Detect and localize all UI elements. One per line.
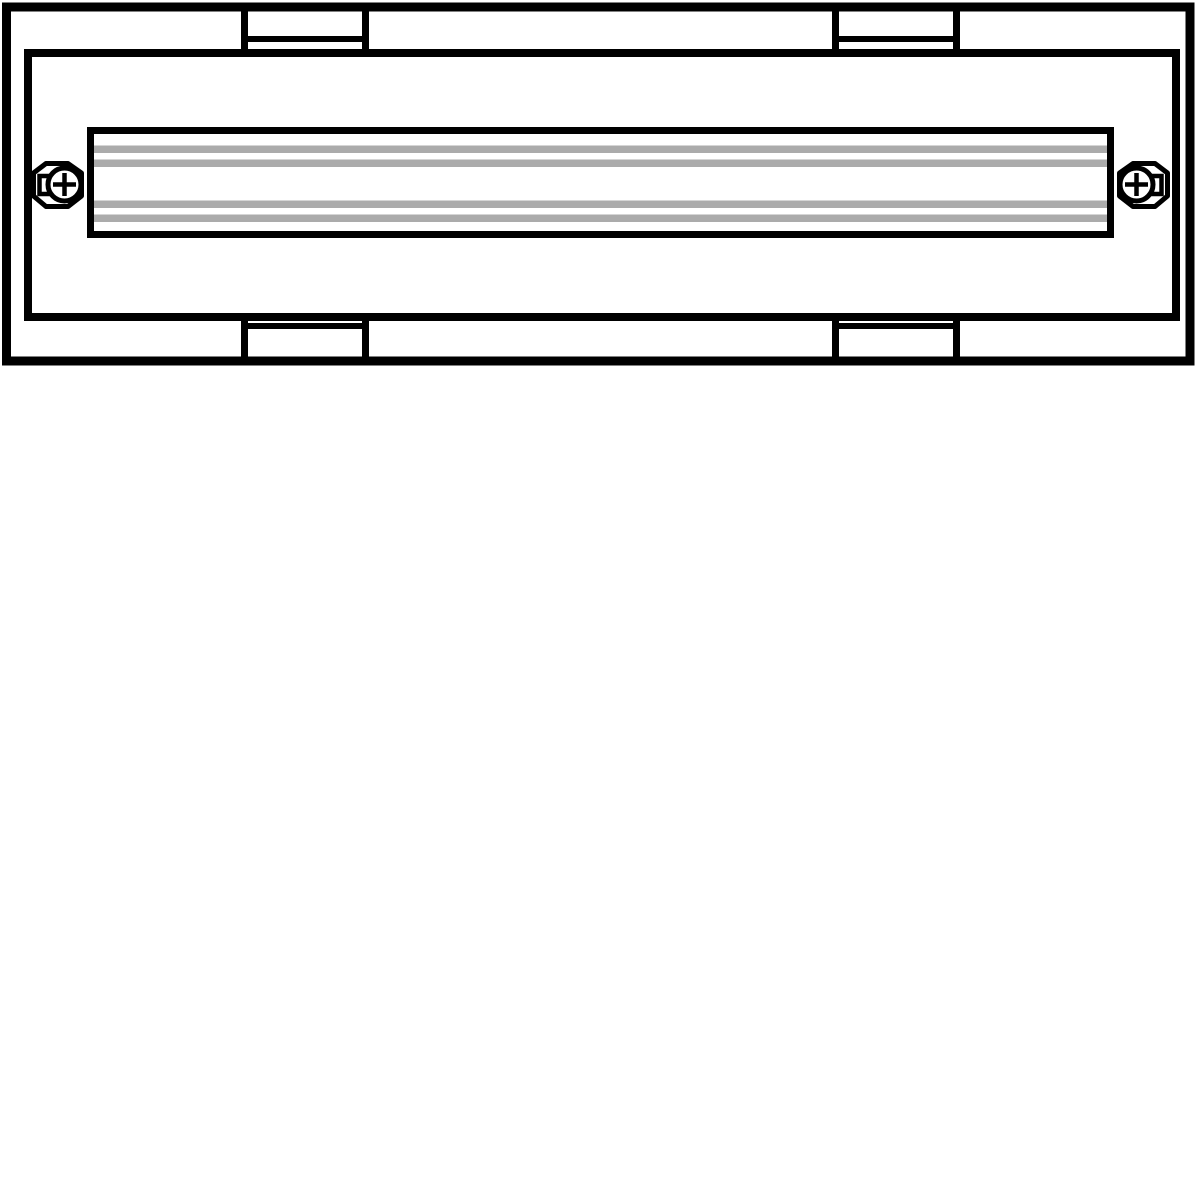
din-rail-groove-1 [94, 146, 1107, 154]
din-rail-groove-2 [94, 160, 1107, 168]
drawing-page [0, 0, 1200, 1200]
din-rail [91, 131, 1111, 235]
din-rail-groove-4 [94, 215, 1107, 223]
din-rail-groove-3 [94, 201, 1107, 209]
fixing-screw-right [1120, 164, 1168, 207]
enclosure-drawing [0, 0, 1200, 1200]
fixing-screw-left [34, 164, 82, 207]
